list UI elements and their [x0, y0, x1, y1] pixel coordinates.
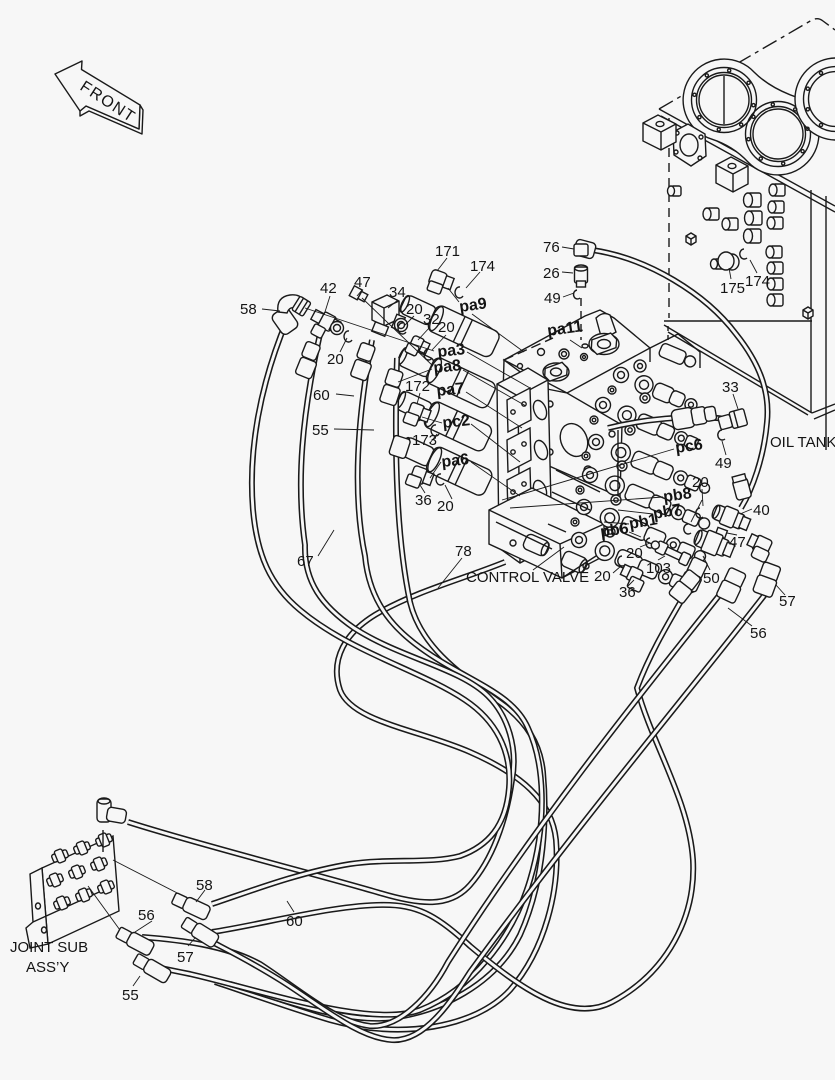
- svg-text:56: 56: [750, 625, 767, 642]
- svg-text:174: 174: [470, 258, 495, 275]
- svg-text:40: 40: [753, 502, 770, 519]
- svg-text:20: 20: [406, 301, 423, 318]
- svg-text:173: 173: [412, 432, 437, 449]
- svg-text:pc2: pc2: [442, 412, 471, 432]
- svg-text:47: 47: [729, 534, 746, 551]
- svg-text:20: 20: [594, 568, 611, 585]
- svg-text:47: 47: [354, 274, 371, 291]
- svg-text:20: 20: [692, 474, 709, 491]
- svg-text:67: 67: [297, 553, 314, 570]
- svg-text:56: 56: [138, 907, 155, 924]
- svg-text:JOINT SUB: JOINT SUB: [10, 939, 88, 956]
- svg-text:50: 50: [703, 570, 720, 587]
- svg-text:pa7: pa7: [436, 380, 465, 400]
- svg-text:CONTROL VALVE: CONTROL VALVE: [466, 569, 589, 586]
- svg-text:103: 103: [646, 560, 671, 577]
- svg-text:172: 172: [405, 378, 430, 395]
- svg-text:58: 58: [196, 877, 213, 894]
- svg-text:55: 55: [312, 422, 329, 439]
- svg-text:20: 20: [438, 319, 455, 336]
- svg-text:78: 78: [455, 543, 472, 560]
- svg-text:34: 34: [389, 284, 406, 301]
- svg-text:60: 60: [286, 913, 303, 930]
- svg-text:49: 49: [715, 455, 732, 472]
- svg-text:20: 20: [626, 545, 643, 562]
- svg-text:171: 171: [435, 243, 460, 260]
- svg-text:175: 175: [720, 280, 745, 297]
- svg-text:pa6: pa6: [441, 451, 470, 471]
- svg-text:55: 55: [122, 987, 139, 1004]
- svg-text:58: 58: [240, 301, 257, 318]
- svg-text:OIL TANK: OIL TANK: [770, 434, 835, 451]
- svg-text:76: 76: [543, 239, 560, 256]
- svg-text:20: 20: [437, 498, 454, 515]
- svg-text:26: 26: [543, 265, 560, 282]
- svg-text:ASS’Y: ASS’Y: [26, 959, 69, 976]
- svg-text:20: 20: [327, 351, 344, 368]
- svg-text:42: 42: [320, 280, 337, 297]
- svg-text:60: 60: [313, 387, 330, 404]
- svg-text:36: 36: [619, 584, 636, 601]
- svg-text:57: 57: [779, 593, 796, 610]
- svg-text:57: 57: [177, 949, 194, 966]
- svg-text:174: 174: [745, 273, 770, 290]
- svg-text:33: 33: [722, 379, 739, 396]
- svg-text:36: 36: [415, 492, 432, 509]
- svg-text:pa8: pa8: [433, 357, 462, 377]
- svg-text:49: 49: [544, 290, 561, 307]
